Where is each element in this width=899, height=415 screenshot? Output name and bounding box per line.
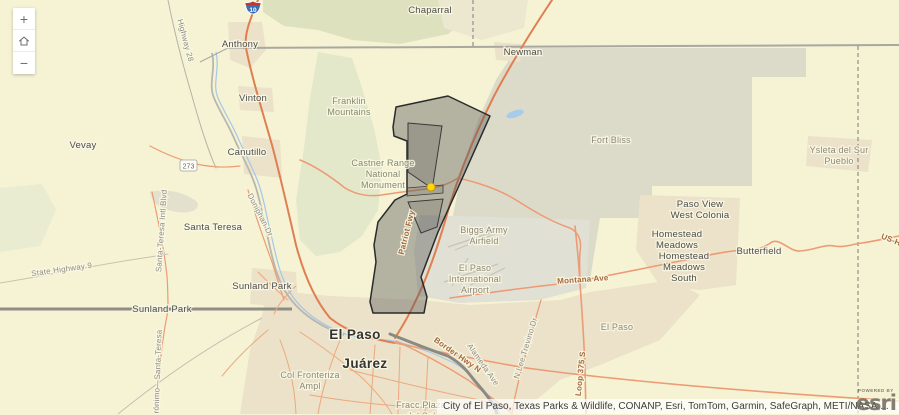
label-castner-3: Monument bbox=[361, 180, 405, 190]
label-paso-view-2: West Colonia bbox=[671, 210, 730, 221]
plus-icon: + bbox=[20, 11, 28, 27]
label-sunland-park-border: Sunland Park bbox=[132, 304, 191, 315]
label-ysleta-1: Ysleta del Sur bbox=[810, 145, 869, 155]
label-castner-1: Castner Range bbox=[351, 158, 414, 168]
i10-shield-number: 10 bbox=[249, 7, 257, 14]
label-castner-2: National bbox=[366, 169, 401, 179]
label-anthony: Anthony bbox=[222, 39, 258, 50]
label-chaparral: Chaparral bbox=[408, 5, 452, 16]
attribution-text: City of El Paso, Texas Parks & Wildlife,… bbox=[443, 401, 889, 412]
label-vevay: Vevay bbox=[70, 140, 97, 151]
label-airport-3: Airport bbox=[461, 285, 489, 295]
label-homestead-1: Homestead bbox=[652, 229, 702, 240]
label-franklin-2: Mountains bbox=[327, 107, 371, 117]
label-col-fronteriza-1: Col Fronteriza bbox=[280, 370, 339, 380]
nm273-shield-number: 273 bbox=[183, 164, 195, 171]
label-juarez: Juárez bbox=[342, 356, 387, 371]
label-biggs-2: Airfield bbox=[469, 236, 498, 246]
label-fort-bliss: Fort Bliss bbox=[591, 135, 631, 145]
esri-wordmark: esri bbox=[856, 393, 896, 414]
label-ysleta-2: Pueblo bbox=[824, 156, 853, 166]
label-vinton: Vinton bbox=[239, 93, 267, 104]
label-butterfield: Butterfield bbox=[737, 246, 782, 257]
label-sunland-park: Sunland Park bbox=[232, 281, 291, 292]
label-airport-1: El Paso bbox=[459, 263, 491, 273]
label-newman: Newman bbox=[504, 47, 543, 58]
yellow-point-marker[interactable] bbox=[427, 183, 435, 191]
esri-logo: POWERED BY esri bbox=[856, 389, 896, 415]
label-biggs-1: Biggs Army bbox=[460, 225, 508, 235]
label-airport-2: International bbox=[449, 274, 501, 284]
home-button[interactable] bbox=[13, 30, 35, 52]
minus-icon: − bbox=[20, 55, 28, 71]
map-zoom-control: + − bbox=[13, 8, 35, 74]
label-el-paso-area: El Paso bbox=[601, 322, 633, 332]
label-santa-teresa: Santa Teresa bbox=[184, 222, 243, 233]
label-el-paso-city: El Paso bbox=[329, 327, 381, 342]
label-paso-view-1: Paso View bbox=[677, 199, 724, 210]
map-canvas[interactable]: 10 273 Chaparral Anthony Newman Vinton V… bbox=[0, 0, 899, 414]
label-canutillo: Canutillo bbox=[228, 147, 267, 158]
label-homestead-south-2: Meadows bbox=[663, 262, 705, 273]
attribution-bar: City of El Paso, Texas Parks & Wildlife,… bbox=[437, 399, 899, 414]
label-homestead-south-1: Homestead bbox=[659, 251, 709, 262]
map-application: { "controls": { "zoom_in_label": "+", "z… bbox=[0, 0, 899, 414]
label-franklin-1: Franklin bbox=[332, 96, 366, 106]
label-col-fronteriza-2: Ampl bbox=[299, 381, 320, 391]
zoom-out-button[interactable]: − bbox=[13, 52, 35, 74]
home-icon bbox=[18, 35, 30, 47]
zoom-in-button[interactable]: + bbox=[13, 8, 35, 30]
label-homestead-2: Meadows bbox=[656, 240, 698, 251]
label-homestead-south-3: South bbox=[671, 273, 697, 284]
shield-273: 273 bbox=[180, 160, 197, 171]
